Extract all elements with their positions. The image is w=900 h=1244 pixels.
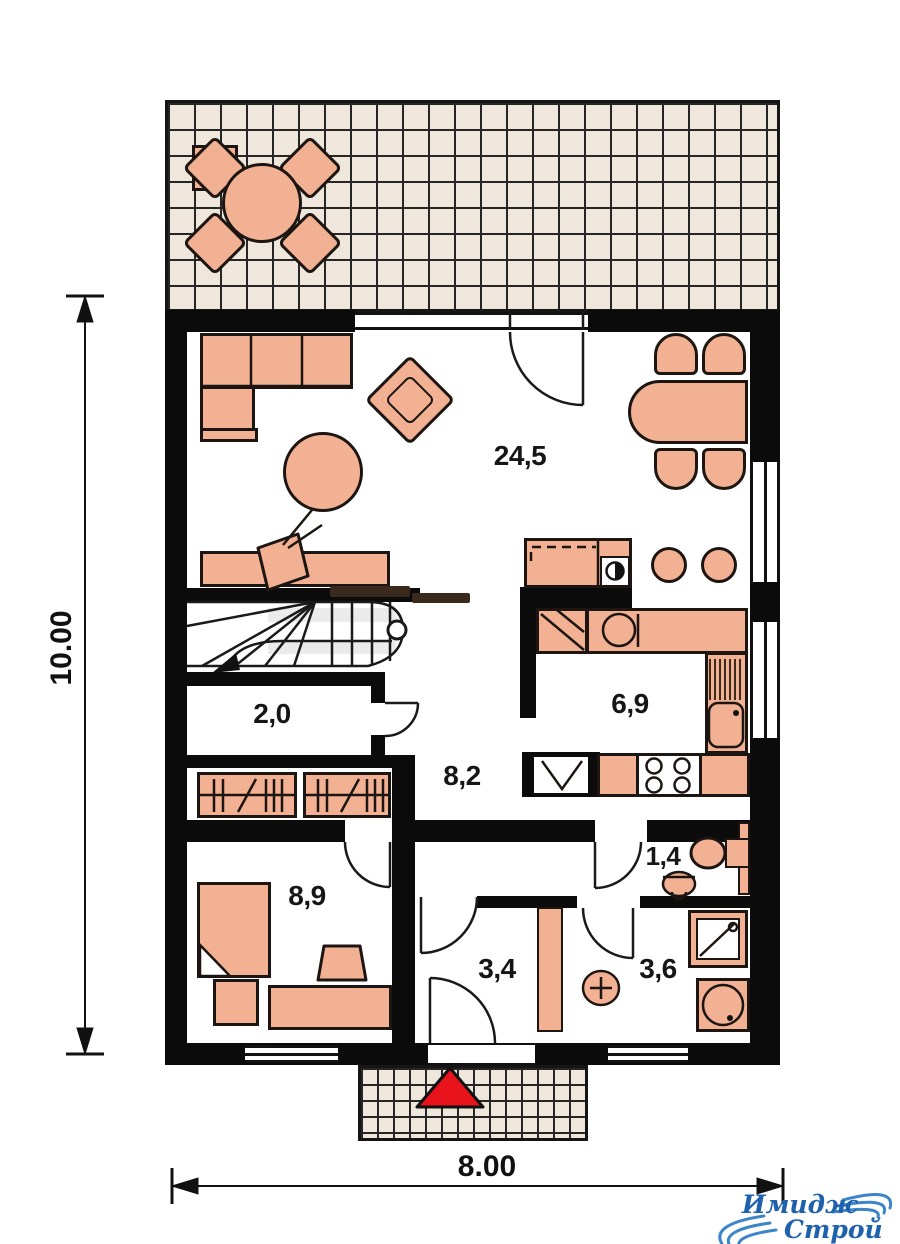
bar-stool-icon bbox=[651, 547, 687, 583]
toilet-tank-icon bbox=[725, 838, 750, 868]
kitchen-counter-run bbox=[586, 608, 748, 654]
room-label-storage: 2,0 bbox=[232, 698, 312, 730]
wall-hall-wc-a bbox=[415, 820, 595, 842]
wall-bedroom-right bbox=[392, 755, 415, 1043]
room-label-bathroom: 3,6 bbox=[618, 953, 698, 985]
logo-text-line2: Строй bbox=[784, 1217, 883, 1243]
terrace-door-window bbox=[355, 312, 588, 330]
sofa-icon bbox=[200, 386, 255, 431]
room-label-kitchen: 6,9 bbox=[590, 688, 670, 720]
dimension-width: 8.00 bbox=[437, 1150, 537, 1184]
fridge-icon bbox=[536, 608, 588, 654]
round-rug-icon bbox=[283, 432, 363, 512]
dining-chair-icon bbox=[654, 333, 698, 375]
shower-tray bbox=[696, 918, 740, 960]
wall-left bbox=[165, 310, 187, 1065]
wardrobe-icon bbox=[303, 772, 391, 818]
bar-stool-icon bbox=[701, 547, 737, 583]
dining-table-icon bbox=[628, 380, 748, 444]
room-label-vestibule: 3,4 bbox=[457, 953, 537, 985]
wall-storage-bottom bbox=[187, 755, 415, 768]
wall-storage-right-a bbox=[371, 686, 385, 703]
stairs bbox=[187, 602, 406, 673]
kitchen-counter-right bbox=[705, 652, 748, 754]
tv-cabinet-icon bbox=[200, 551, 390, 587]
stair-handrail bbox=[412, 593, 470, 603]
wall-kitchen-stub bbox=[520, 587, 632, 608]
vent-niche bbox=[534, 757, 588, 793]
kitchen-window bbox=[750, 622, 780, 738]
room-label-wc: 1,4 bbox=[628, 840, 698, 872]
kitchen-oven-icon bbox=[600, 556, 630, 587]
wall-bedroom-top bbox=[187, 820, 345, 842]
entrance-opening bbox=[428, 1043, 535, 1065]
washing-machine-icon bbox=[696, 978, 750, 1032]
floor-plan: 24,5 2,0 6,9 8,2 8,9 1,4 3,4 3,6 10.00 8… bbox=[0, 0, 900, 1244]
sofa-icon bbox=[200, 333, 353, 389]
nightstand-icon bbox=[213, 979, 259, 1026]
sofa-side-table-icon bbox=[200, 428, 258, 442]
partition-vestibule-bath bbox=[537, 907, 563, 1032]
bedroom-window bbox=[245, 1045, 338, 1063]
wall-storage-right-b bbox=[371, 735, 385, 755]
dining-chair-icon bbox=[702, 448, 746, 490]
dining-chair-icon bbox=[702, 333, 746, 375]
terrace-table-icon bbox=[222, 163, 302, 243]
porch-tiles bbox=[358, 1065, 588, 1141]
wall-wc-bath-b bbox=[640, 896, 750, 908]
dimension-depth: 10.00 bbox=[45, 588, 79, 708]
stair-handrail bbox=[330, 586, 410, 597]
bathroom-window bbox=[608, 1045, 688, 1063]
room-label-bedroom: 8,9 bbox=[267, 880, 347, 912]
room-label-living: 24,5 bbox=[470, 440, 570, 472]
wardrobe-icon bbox=[197, 772, 297, 818]
room-label-hall: 8,2 bbox=[422, 760, 502, 792]
desk-icon bbox=[268, 985, 392, 1030]
wall-stairs-storage bbox=[187, 672, 385, 686]
dining-window bbox=[750, 462, 780, 582]
dining-chair-icon bbox=[654, 448, 698, 490]
stove-icon bbox=[636, 753, 702, 797]
bed-icon bbox=[197, 882, 271, 978]
wall-top-left bbox=[165, 310, 355, 332]
